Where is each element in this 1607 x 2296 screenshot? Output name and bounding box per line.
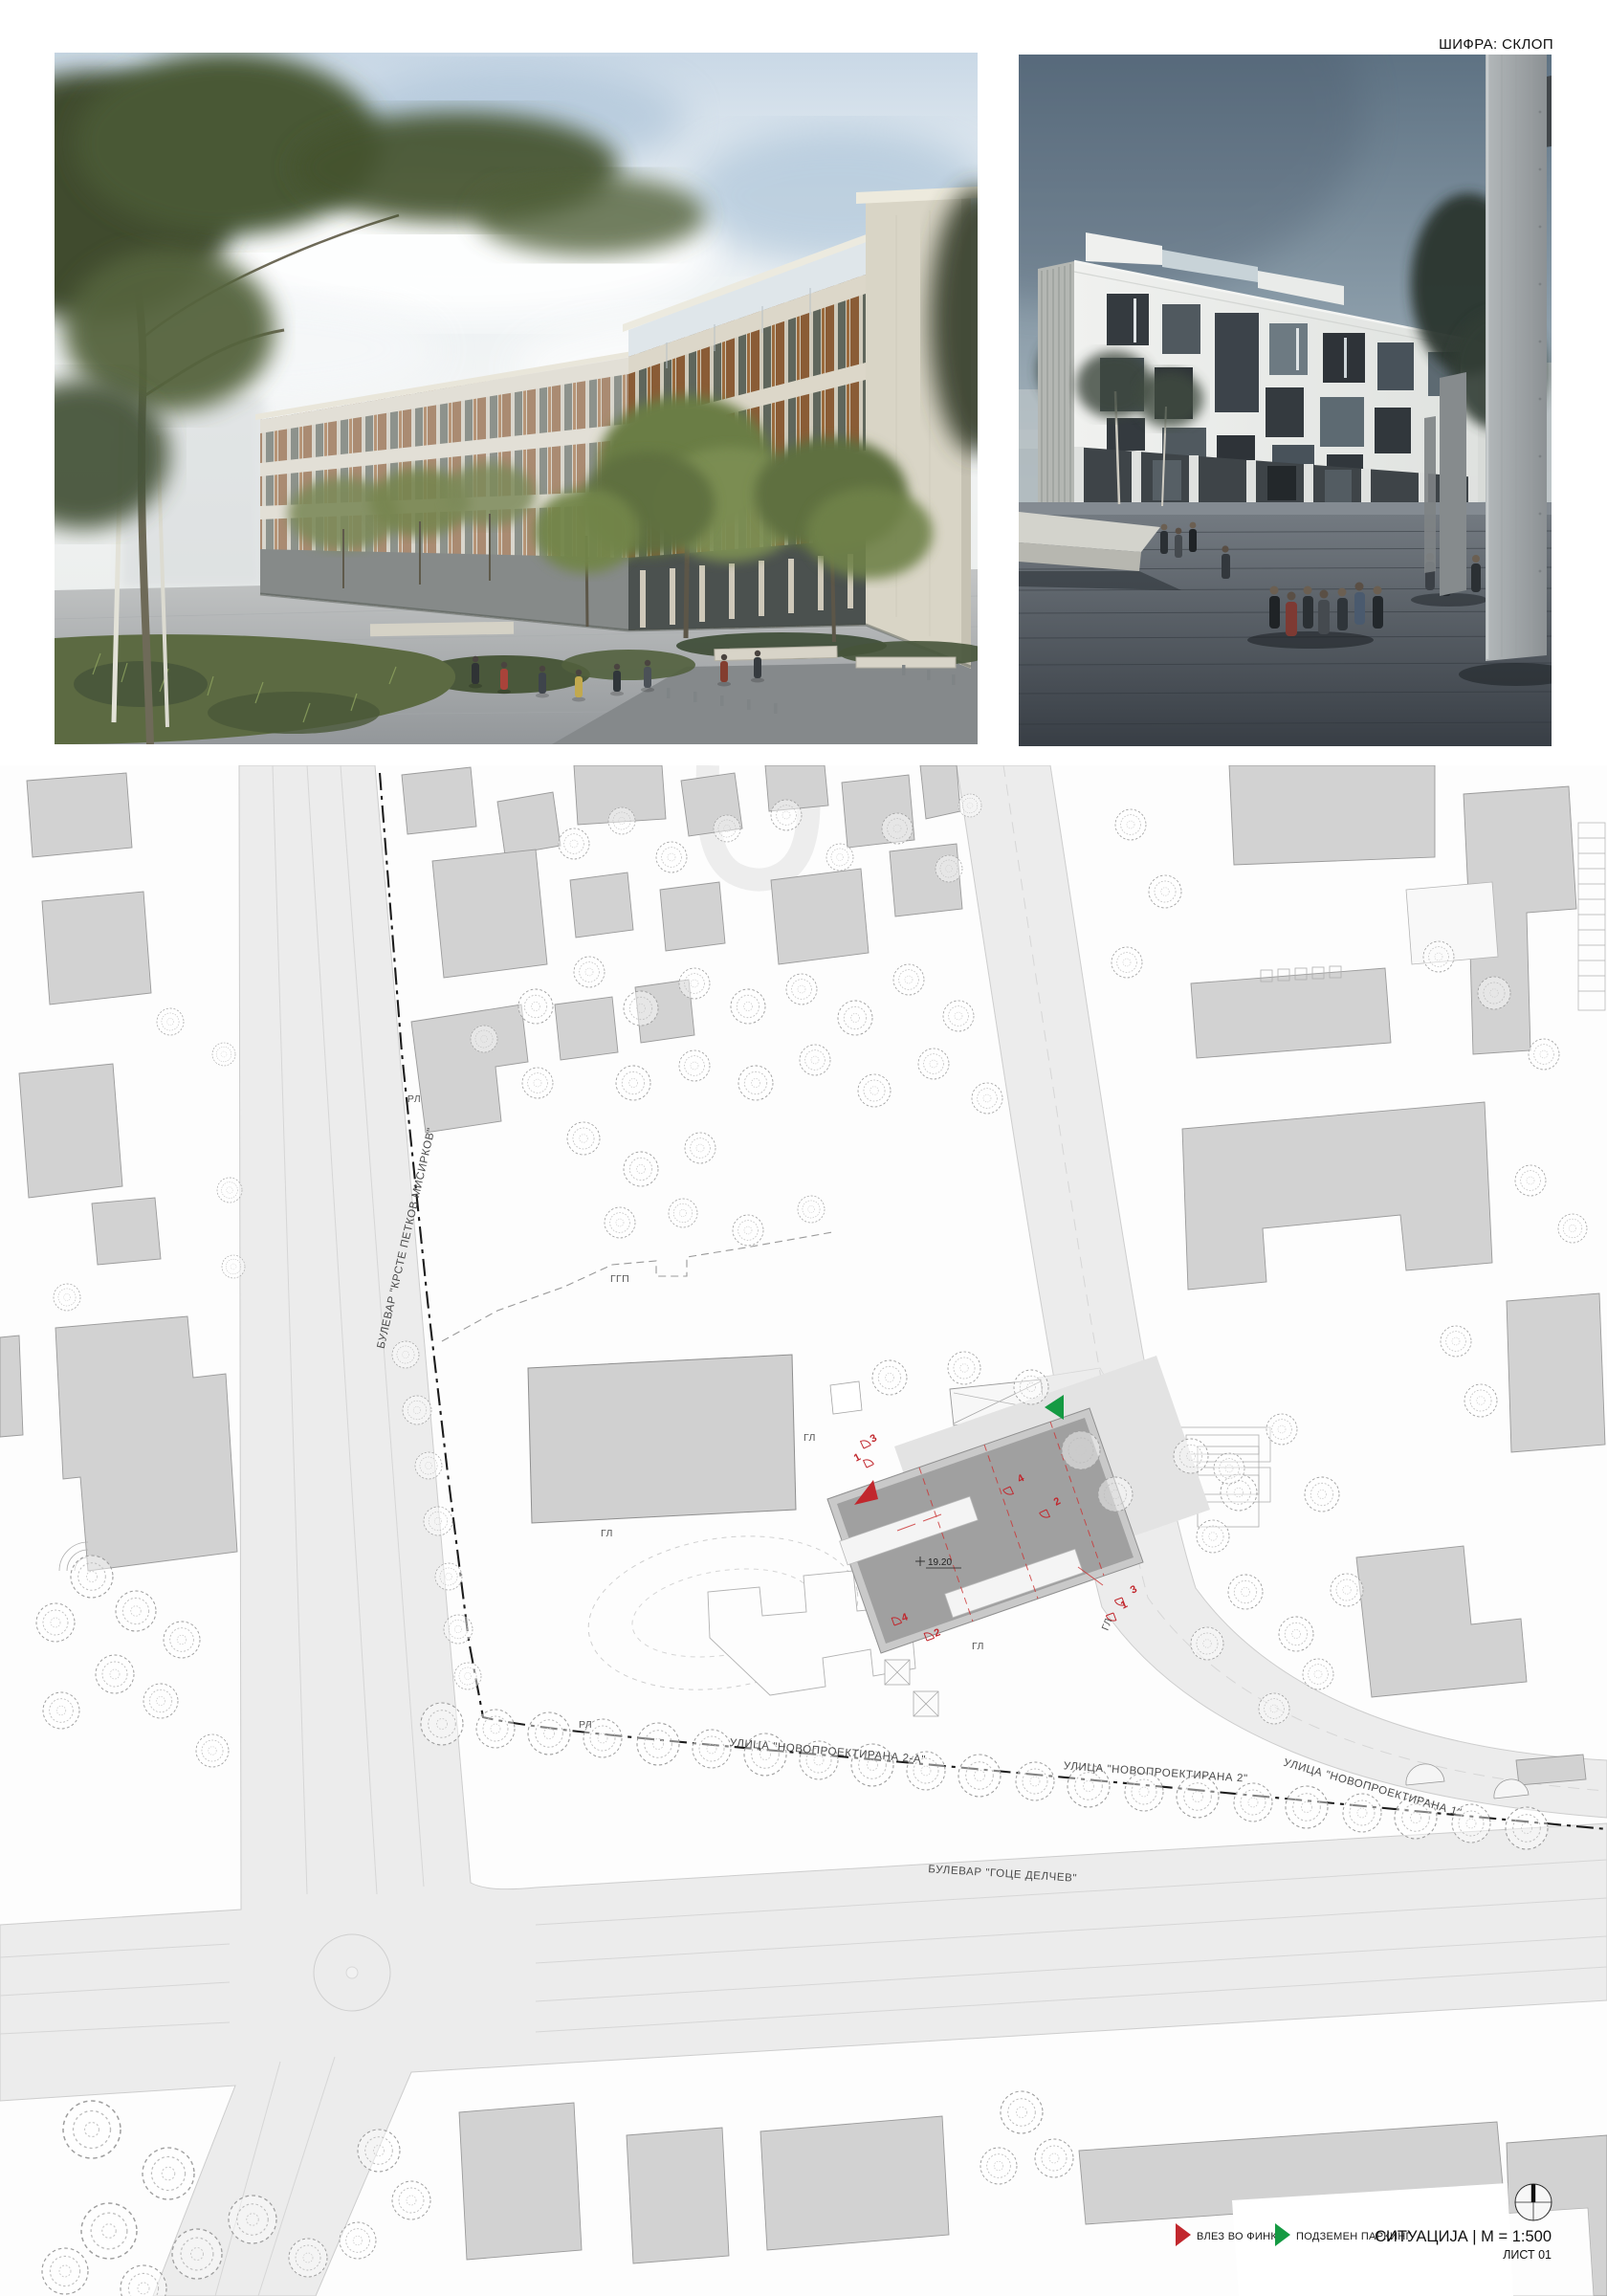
north-arrow-icon — [1515, 2184, 1552, 2220]
site-plan: 19.20 3 1 4 2 3 1 4 2 — [0, 765, 1607, 2296]
rl-label: РЛ — [407, 1093, 421, 1105]
building-height-label: 19.20 — [928, 1557, 952, 1568]
existing-hall-building — [528, 1355, 796, 1523]
rendering-plaza-view — [1019, 55, 1552, 746]
gl-label: ГЛ — [601, 1528, 613, 1539]
rendering-park-view — [55, 53, 978, 744]
plaza-light-band — [1019, 502, 1552, 515]
rl-label: РЛ — [579, 1719, 592, 1731]
gl-label: ГЛ — [972, 1641, 984, 1652]
sheet-code-label: ШИФРА: СКЛОП — [1439, 36, 1553, 53]
ggp-label: ГГП — [610, 1273, 629, 1285]
roundabout-center — [346, 1967, 358, 1978]
legend-sheet-number: ЛИСТ 01 — [1503, 2248, 1552, 2262]
legend-entrance-label: ВЛЕЗ ВО ФИНКИ — [1197, 2231, 1285, 2242]
gl-label: ГЛ — [803, 1432, 816, 1444]
legend-scale-title: СИТУАЦИЈА | М = 1:500 — [1375, 2228, 1552, 2245]
